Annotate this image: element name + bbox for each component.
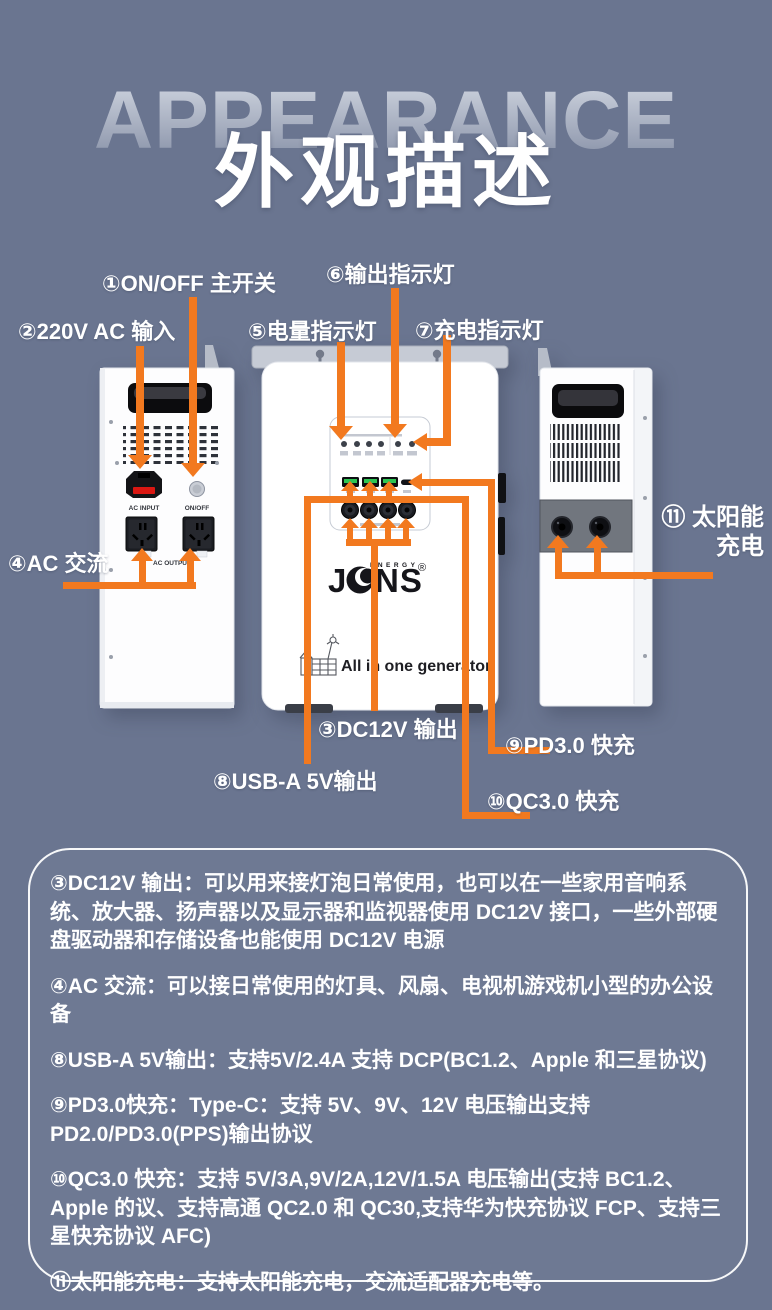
logo-registered-icon: ® — [418, 562, 426, 574]
callout-label-1: ①ON/OFF 主开关 — [102, 266, 276, 298]
callout-label-2: ②220V AC 输入 — [18, 314, 175, 346]
mount-tab — [205, 345, 219, 368]
line-segment — [403, 528, 409, 540]
line-segment — [555, 547, 562, 574]
on-off-button-inner — [193, 485, 202, 494]
solar-input-jack — [590, 517, 610, 537]
callout-label-4: ④AC 交流 — [8, 546, 109, 578]
arrowhead-icon — [380, 481, 398, 491]
page-title: 外观描述 — [0, 108, 772, 224]
logo-j: J — [328, 562, 346, 599]
ac-output-label: AC OUTPUT — [153, 560, 191, 567]
screw-icon — [643, 496, 647, 500]
dc12v-jack — [380, 502, 397, 519]
callout-label-3: ③DC12V 输出 — [318, 712, 458, 744]
screw-icon — [109, 568, 113, 572]
dc12v-jack — [361, 502, 378, 519]
device-side-edge — [100, 368, 105, 708]
arrowhead-icon — [361, 481, 379, 491]
line-segment — [346, 539, 411, 546]
ac-outlet — [183, 517, 214, 551]
line-segment — [187, 560, 194, 584]
arrowhead-icon — [408, 473, 422, 491]
ac-input-port — [126, 471, 162, 498]
callout-label-11-line1: ⑪ 太阳能 — [661, 503, 764, 532]
solar-input-jack — [552, 517, 572, 537]
callout-label-6: ⑥输出指示灯 — [326, 257, 455, 289]
callout-label-8: ⑧USB-A 5V输出 — [213, 764, 378, 796]
line-segment — [391, 288, 399, 426]
callout-label-7: ⑦充电指示灯 — [415, 313, 544, 345]
line-segment — [421, 479, 495, 486]
arrowhead-icon — [547, 535, 569, 548]
description-dc12v: ③DC12V 输出：可以用来接灯泡日常使用，也可以在一些家用音响系统、放大器、扬… — [50, 870, 724, 956]
description-pd30: ⑨PD3.0快充：Type-C：支持 5V、9V、12V 电压输出支持 PD2.… — [50, 1092, 724, 1149]
screw-icon — [109, 420, 113, 424]
arrowhead-icon — [586, 535, 608, 548]
arrowhead-icon — [329, 426, 353, 440]
screw-icon — [643, 416, 647, 420]
line-segment — [337, 342, 345, 428]
callout-label-5: ⑤电量指示灯 — [248, 314, 377, 346]
screw-icon — [643, 654, 647, 658]
ac-outlet — [126, 517, 157, 551]
ac-input-label: AC INPUT — [129, 505, 160, 512]
line-segment — [347, 528, 353, 540]
arrowhead-icon — [341, 518, 359, 528]
line-segment — [139, 560, 146, 584]
device-side-face — [634, 369, 651, 705]
left-device-image: AC INPUT ON/OFF AC OUTPUT — [96, 342, 240, 714]
description-usb: ⑧USB-A 5V输出：支持5V/2.4A 支持 DCP(BC1.2、Apple… — [50, 1047, 724, 1076]
line-segment — [63, 582, 196, 589]
line-segment — [555, 572, 713, 579]
arrowhead-icon — [413, 433, 427, 451]
dc12v-jack — [399, 502, 416, 519]
arrowhead-icon — [383, 424, 407, 438]
side-port — [498, 473, 506, 503]
line-segment — [371, 539, 378, 711]
line-segment — [385, 528, 391, 540]
line-segment — [304, 496, 311, 764]
callout-label-11-line2: 充电 — [661, 532, 764, 561]
arrowhead-icon — [131, 548, 153, 561]
screw-icon — [215, 461, 219, 465]
right-device-image — [530, 344, 672, 716]
description-ac: ④AC 交流：可以接日常使用的灯具、风扇、电视机游戏机小型的办公设备 — [50, 973, 724, 1030]
line-segment — [443, 335, 451, 446]
description-panel: ③DC12V 输出：可以用来接灯泡日常使用，也可以在一些家用音响系统、放大器、扬… — [28, 848, 748, 1282]
description-qc30: ⑩QC3.0 快充：支持 5V/3A,9V/2A,12V/1.5A 电压输出(支… — [50, 1166, 724, 1252]
arrowhead-icon — [360, 518, 378, 528]
vent-gap — [550, 458, 620, 461]
arrowhead-icon — [179, 548, 201, 561]
vent-grille — [550, 424, 620, 482]
description-solar: ⑪太阳能充电：支持太阳能充电，交流适配器充电等。 — [50, 1269, 724, 1298]
arrowhead-icon — [397, 518, 415, 528]
dc12v-jack — [342, 502, 359, 519]
arrowhead-icon — [181, 463, 205, 477]
vent-gap — [550, 440, 620, 443]
line-segment — [427, 438, 451, 446]
line-segment — [594, 547, 601, 574]
page-background: APPEARANCE 外观描述 AC INPUT — [0, 0, 772, 1310]
on-off-label: ON/OFF — [185, 505, 210, 512]
arrowhead-icon — [128, 455, 152, 469]
carry-handle-inner — [558, 390, 618, 406]
line-segment — [136, 346, 144, 457]
side-port — [498, 517, 505, 555]
screw-icon — [109, 655, 113, 659]
arrowhead-icon — [341, 481, 359, 491]
center-device-image: J NS ENERGY ® All in one generator — [248, 343, 512, 719]
callout-label-11: ⑪ 太阳能 充电 — [661, 503, 764, 562]
arrowhead-icon — [379, 518, 397, 528]
line-segment — [488, 479, 495, 754]
callout-label-9: ⑨PD3.0 快充 — [505, 728, 635, 760]
screw-icon — [115, 461, 119, 465]
device-bottom-shade — [100, 702, 234, 708]
line-segment — [304, 496, 469, 503]
line-segment — [462, 496, 469, 812]
line-segment — [189, 297, 197, 465]
callout-label-10: ⑩QC3.0 快充 — [487, 784, 619, 816]
